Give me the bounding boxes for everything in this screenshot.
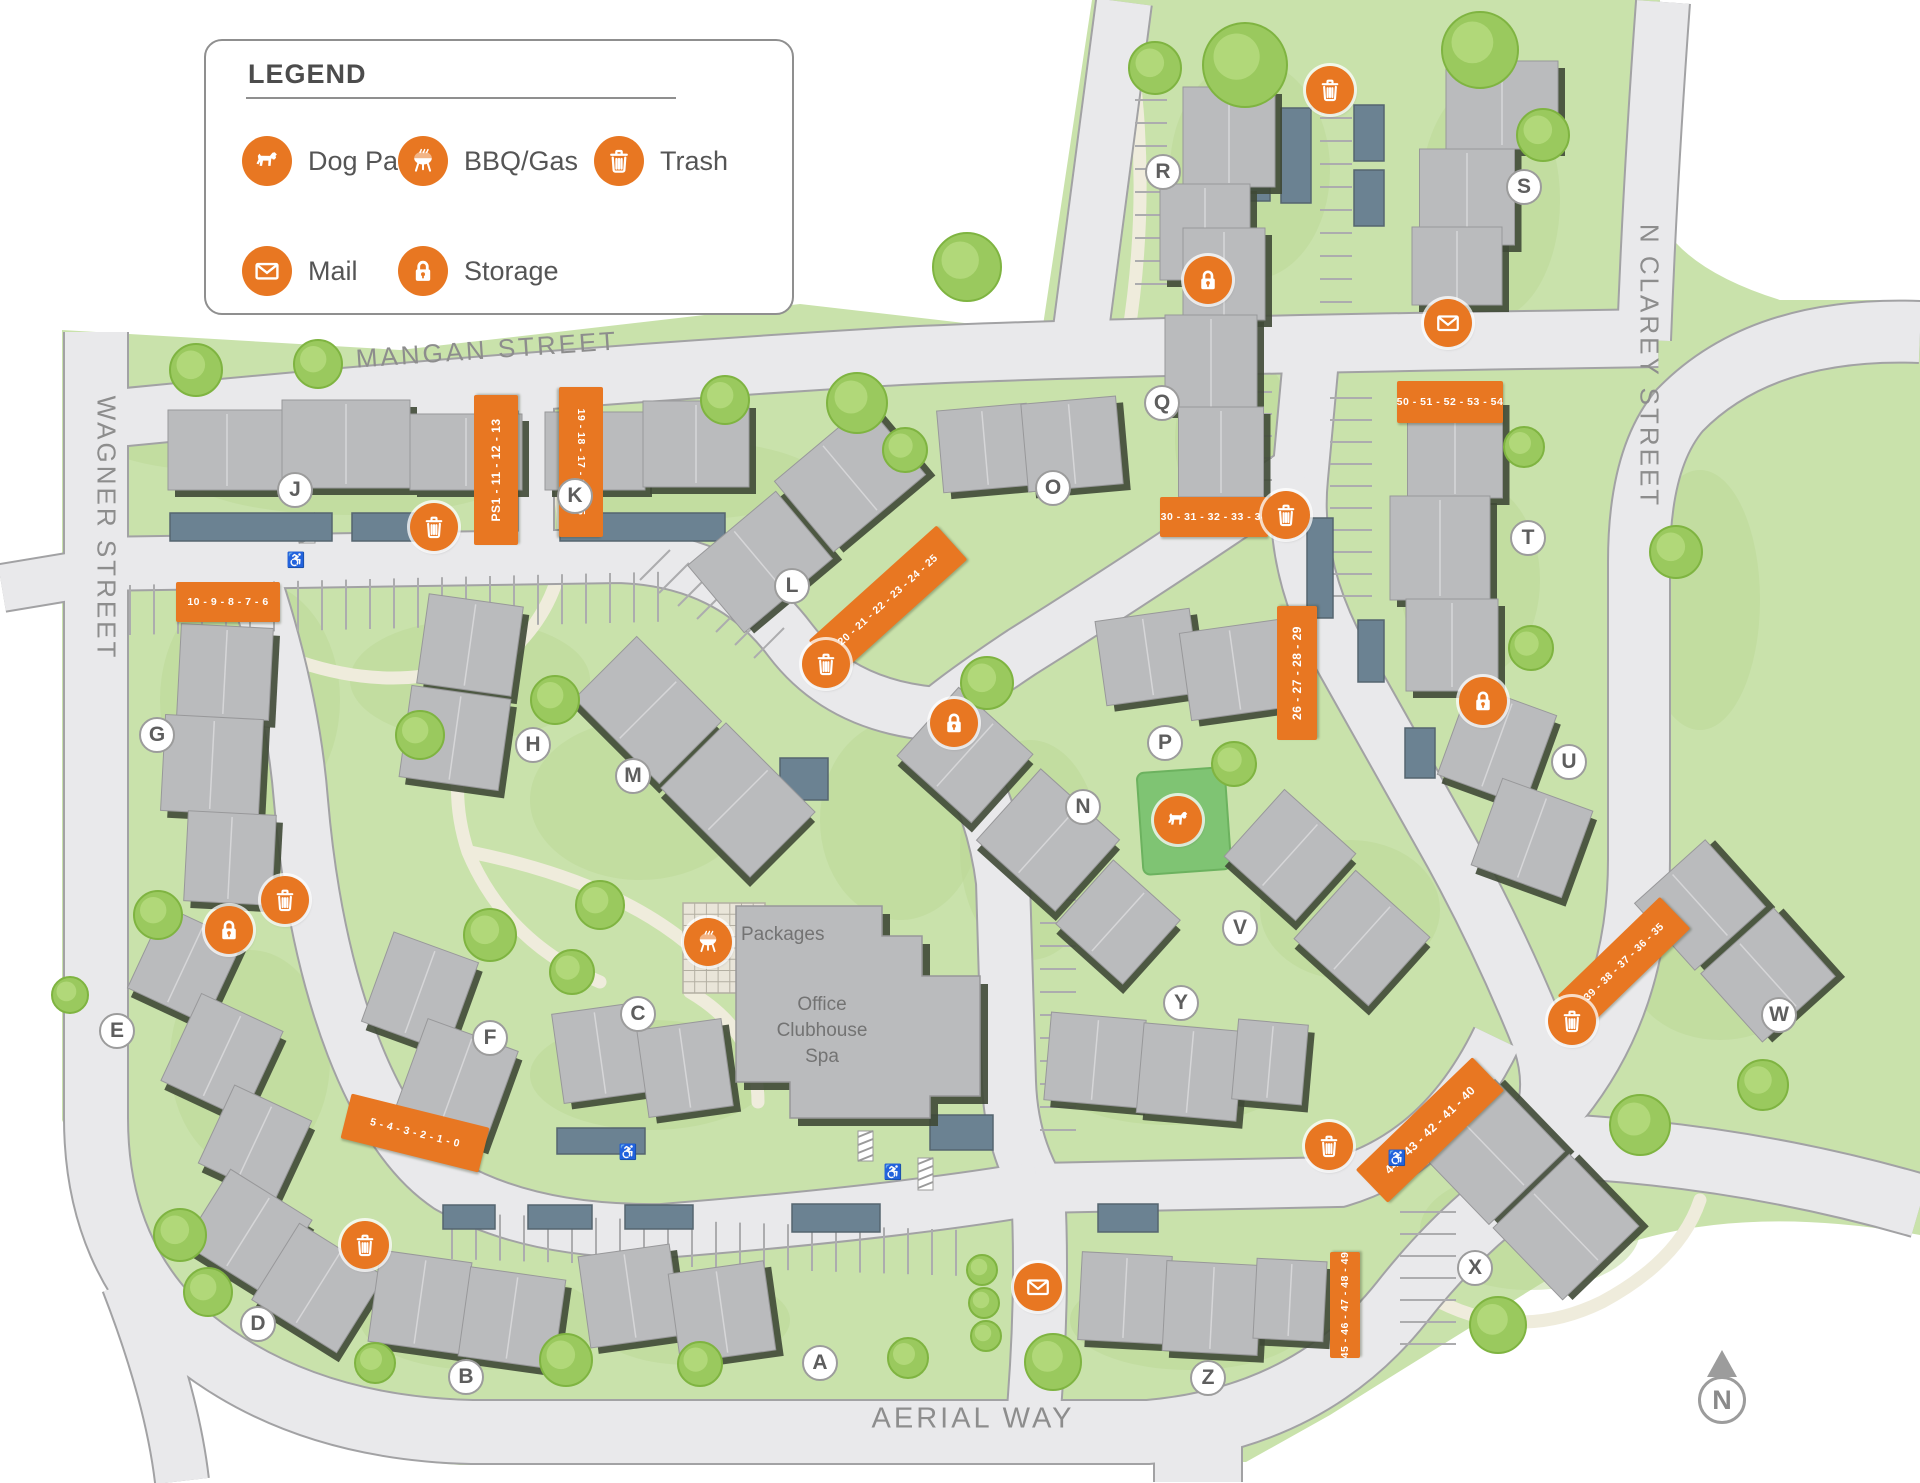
bbq-icon-glyph [693,927,723,957]
trash-marker-icon[interactable] [1262,491,1310,539]
building-letter: H [525,733,540,757]
building-marker-v[interactable]: V [1222,910,1258,946]
site-map: MANGAN STREETWAGNER STREETN CLAREY STREE… [0,0,1920,1483]
wheelchair-stall-icon: ♿ [884,1163,903,1181]
trash-icon [594,136,644,186]
trash-icon-glyph [811,649,841,679]
storage-lock-marker-icon[interactable] [205,906,253,954]
building-letter: F [484,1026,497,1050]
dog-icon [242,136,292,186]
trash-marker-icon[interactable] [261,876,309,924]
legend-title: LEGEND [248,59,367,90]
unit-range-label: 45 - 46 - 47 - 48 - 49 [1330,1252,1360,1358]
building-letter: K [567,484,582,508]
building-marker-s[interactable]: S [1506,169,1542,205]
storage-icon-glyph [939,708,969,738]
storage-lock-marker-icon[interactable] [930,699,978,747]
street-label-n-clarey-street: N CLAREY STREET [1634,224,1665,508]
building-marker-c[interactable]: C [620,996,656,1032]
building-letter: J [289,478,301,502]
facility-label-spa: Spa [805,1046,839,1068]
building-letter: X [1468,1256,1482,1280]
storage-icon [398,246,448,296]
street-label-aerial-way: AERIAL WAY [872,1403,1075,1436]
facility-label-packages: Packages [741,924,824,946]
trash-icon-glyph [1314,1131,1344,1161]
trash-icon-glyph [270,885,300,915]
unit-range-label: 26 - 27 - 28 - 29 [1277,606,1317,740]
building-marker-k[interactable]: K [557,478,593,514]
trash-marker-icon[interactable] [410,503,458,551]
mail-icon-glyph [251,255,283,287]
building-letter: W [1769,1003,1789,1027]
legend-panel: LEGEND Dog ParkBBQ/GasTrashMailStorage [204,39,794,315]
building-letter: M [624,764,642,788]
building-letter: B [458,1365,473,1389]
building-marker-g[interactable]: G [139,717,175,753]
building-letter: A [812,1351,827,1375]
trash-marker-icon[interactable] [1548,997,1596,1045]
building-marker-f[interactable]: F [472,1020,508,1056]
wheelchair-stall-icon: ♿ [1388,1149,1407,1167]
building-marker-z[interactable]: Z [1190,1360,1226,1396]
building-letter: N [1075,795,1090,819]
building-marker-u[interactable]: U [1551,744,1587,780]
legend-item-bbq-gas: BBQ/Gas [398,136,578,186]
storage-icon-glyph [407,255,439,287]
compass-north-indicator: N [1698,1376,1746,1424]
building-marker-n[interactable]: N [1065,789,1101,825]
building-letter: G [149,723,165,747]
building-marker-y[interactable]: Y [1163,985,1199,1021]
building-marker-q[interactable]: Q [1144,385,1180,421]
building-letter: P [1158,731,1172,755]
trash-icon-glyph [419,512,449,542]
storage-icon-glyph [1193,265,1223,295]
building-letter: L [786,574,799,598]
mail-marker-icon[interactable] [1014,1263,1062,1311]
unit-range-label: 30 - 31 - 32 - 33 - 34 [1160,497,1268,537]
trash-icon-glyph [1271,500,1301,530]
street-label-wagner-street: WAGNER STREET [91,396,122,661]
building-marker-j[interactable]: J [277,472,313,508]
compass-label: N [1712,1385,1732,1416]
trash-marker-icon[interactable] [802,640,850,688]
building-marker-e[interactable]: E [99,1013,135,1049]
trash-marker-icon[interactable] [1305,1122,1353,1170]
facility-label-office: Office [797,994,846,1016]
unit-range-label: 50 - 51 - 52 - 53 - 54 [1397,381,1503,423]
trash-icon-glyph [1315,75,1345,105]
trash-icon-glyph [350,1230,380,1260]
bbq-icon-glyph [407,145,439,177]
legend-item-trash: Trash [594,136,728,186]
storage-lock-marker-icon[interactable] [1459,677,1507,725]
bbq-icon [398,136,448,186]
building-marker-p[interactable]: P [1147,725,1183,761]
building-marker-m[interactable]: M [615,758,651,794]
building-letter: Q [1154,391,1170,415]
legend-item-label: Mail [308,256,358,287]
unit-range-label: 10 - 9 - 8 - 7 - 6 [176,582,280,622]
building-marker-b[interactable]: B [448,1359,484,1395]
wheelchair-stall-icon: ♿ [287,551,306,569]
bbq-marker-icon[interactable] [684,918,732,966]
storage-icon-glyph [1468,686,1498,716]
building-marker-t[interactable]: T [1510,520,1546,556]
legend-item-storage: Storage [398,246,559,296]
building-letter: S [1517,175,1531,199]
building-marker-x[interactable]: X [1457,1250,1493,1286]
mail-icon-glyph [1433,308,1463,338]
building-letter: C [630,1002,645,1026]
legend-divider [246,97,676,99]
dog-marker-icon[interactable] [1154,796,1202,844]
building-marker-r[interactable]: R [1145,154,1181,190]
building-marker-o[interactable]: O [1035,470,1071,506]
trash-icon-glyph [1557,1006,1587,1036]
building-letter: Z [1202,1366,1215,1390]
storage-icon-glyph [214,915,244,945]
building-letter: U [1561,750,1576,774]
building-letter: E [110,1019,124,1043]
building-marker-d[interactable]: D [240,1306,276,1342]
legend-item-label: BBQ/Gas [464,146,578,177]
building-marker-w[interactable]: W [1761,997,1797,1033]
trash-icon-glyph [603,145,635,177]
storage-lock-marker-icon[interactable] [1184,256,1232,304]
unit-range-label: PS1 - 11 - 12 - 13 [474,395,518,545]
trash-marker-icon[interactable] [1306,66,1354,114]
unit-range-label: 19 - 18 - 17 - 16 - 15 [559,387,603,537]
legend-item-dog-park: Dog Park [242,136,421,186]
legend-item-label: Storage [464,256,559,287]
dog-icon-glyph [251,145,283,177]
mail-icon [242,246,292,296]
dog-icon-glyph [1163,805,1193,835]
legend-item-mail: Mail [242,246,358,296]
mail-marker-icon[interactable] [1424,299,1472,347]
legend-item-label: Trash [660,146,728,177]
building-letter: Y [1174,991,1188,1015]
building-letter: D [250,1312,265,1336]
building-letter: O [1045,476,1061,500]
trash-marker-icon[interactable] [341,1221,389,1269]
facility-label-clubhouse: Clubhouse [777,1020,868,1042]
building-marker-h[interactable]: H [515,727,551,763]
building-marker-a[interactable]: A [802,1345,838,1381]
wheelchair-stall-icon: ♿ [619,1143,638,1161]
building-letter: R [1155,160,1170,184]
compass-arrow [1707,1350,1737,1377]
mail-icon-glyph [1023,1272,1053,1302]
building-letter: T [1522,526,1535,550]
building-marker-l[interactable]: L [774,568,810,604]
building-letter: V [1233,916,1247,940]
